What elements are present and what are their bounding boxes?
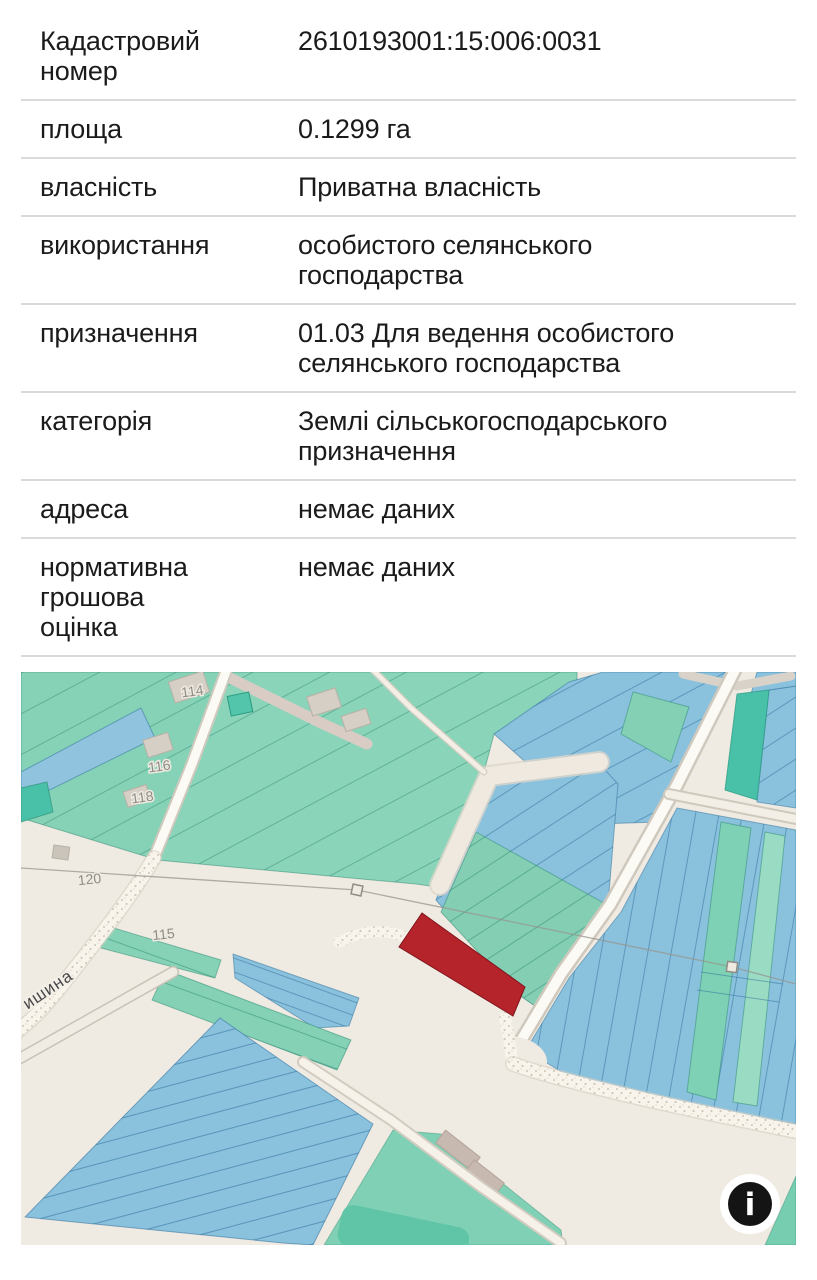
row-label: Кадастровий номер [40, 26, 220, 86]
row-label: площа [40, 114, 220, 144]
pylon-icon [351, 884, 363, 896]
row-label: власність [40, 172, 220, 202]
parcel-number-label: 118 [130, 788, 155, 807]
table-row-category: категорія Землі сільськогосподарського п… [21, 393, 796, 481]
cadastral-parcel-page: Кадастровий номер 2610193001:15:006:0031… [0, 0, 817, 1280]
table-row-address: адреса немає даних [21, 481, 796, 539]
parcel-number-label: 114 [180, 682, 205, 701]
table-row-cadastral-number: Кадастровий номер 2610193001:15:006:0031 [21, 0, 796, 101]
row-label: призначення [40, 318, 220, 348]
parcel-number-label: 115 [152, 925, 176, 943]
cadastral-map[interactable]: 114 116 118 120 115 ишина i [21, 672, 796, 1245]
parcel-info-table: Кадастровий номер 2610193001:15:006:0031… [0, 0, 817, 657]
row-value: Землі сільськогосподарського призначення [298, 406, 738, 466]
row-label: адреса [40, 494, 220, 524]
row-value: особистого селянського господарства [298, 230, 738, 290]
table-row-monetary-valuation: нормативна грошова оцінка немає даних [21, 539, 796, 657]
row-value: 0.1299 га [298, 114, 738, 144]
row-value: 01.03 Для ведення особистого селянського… [298, 318, 738, 378]
building [52, 845, 70, 860]
table-row-area: площа 0.1299 га [21, 101, 796, 159]
pylon-icon [726, 961, 737, 972]
parcel-number-label: 120 [77, 870, 102, 888]
parcel-number-label: 116 [147, 757, 172, 776]
row-value: 2610193001:15:006:0031 [298, 26, 738, 56]
row-label: категорія [40, 406, 220, 436]
row-label: нормативна грошова оцінка [40, 552, 220, 642]
info-icon-glyph: i [745, 1187, 756, 1223]
table-row-ownership: власність Приватна власність [21, 159, 796, 217]
row-value: немає даних [298, 552, 738, 582]
table-row-purpose: призначення 01.03 Для ведення особистого… [21, 305, 796, 393]
row-value: немає даних [298, 494, 738, 524]
row-value: Приватна власність [298, 172, 738, 202]
info-button[interactable]: i [720, 1174, 780, 1234]
building [227, 692, 253, 716]
table-row-use: використання особистого селянського госп… [21, 217, 796, 305]
row-label: використання [40, 230, 220, 260]
